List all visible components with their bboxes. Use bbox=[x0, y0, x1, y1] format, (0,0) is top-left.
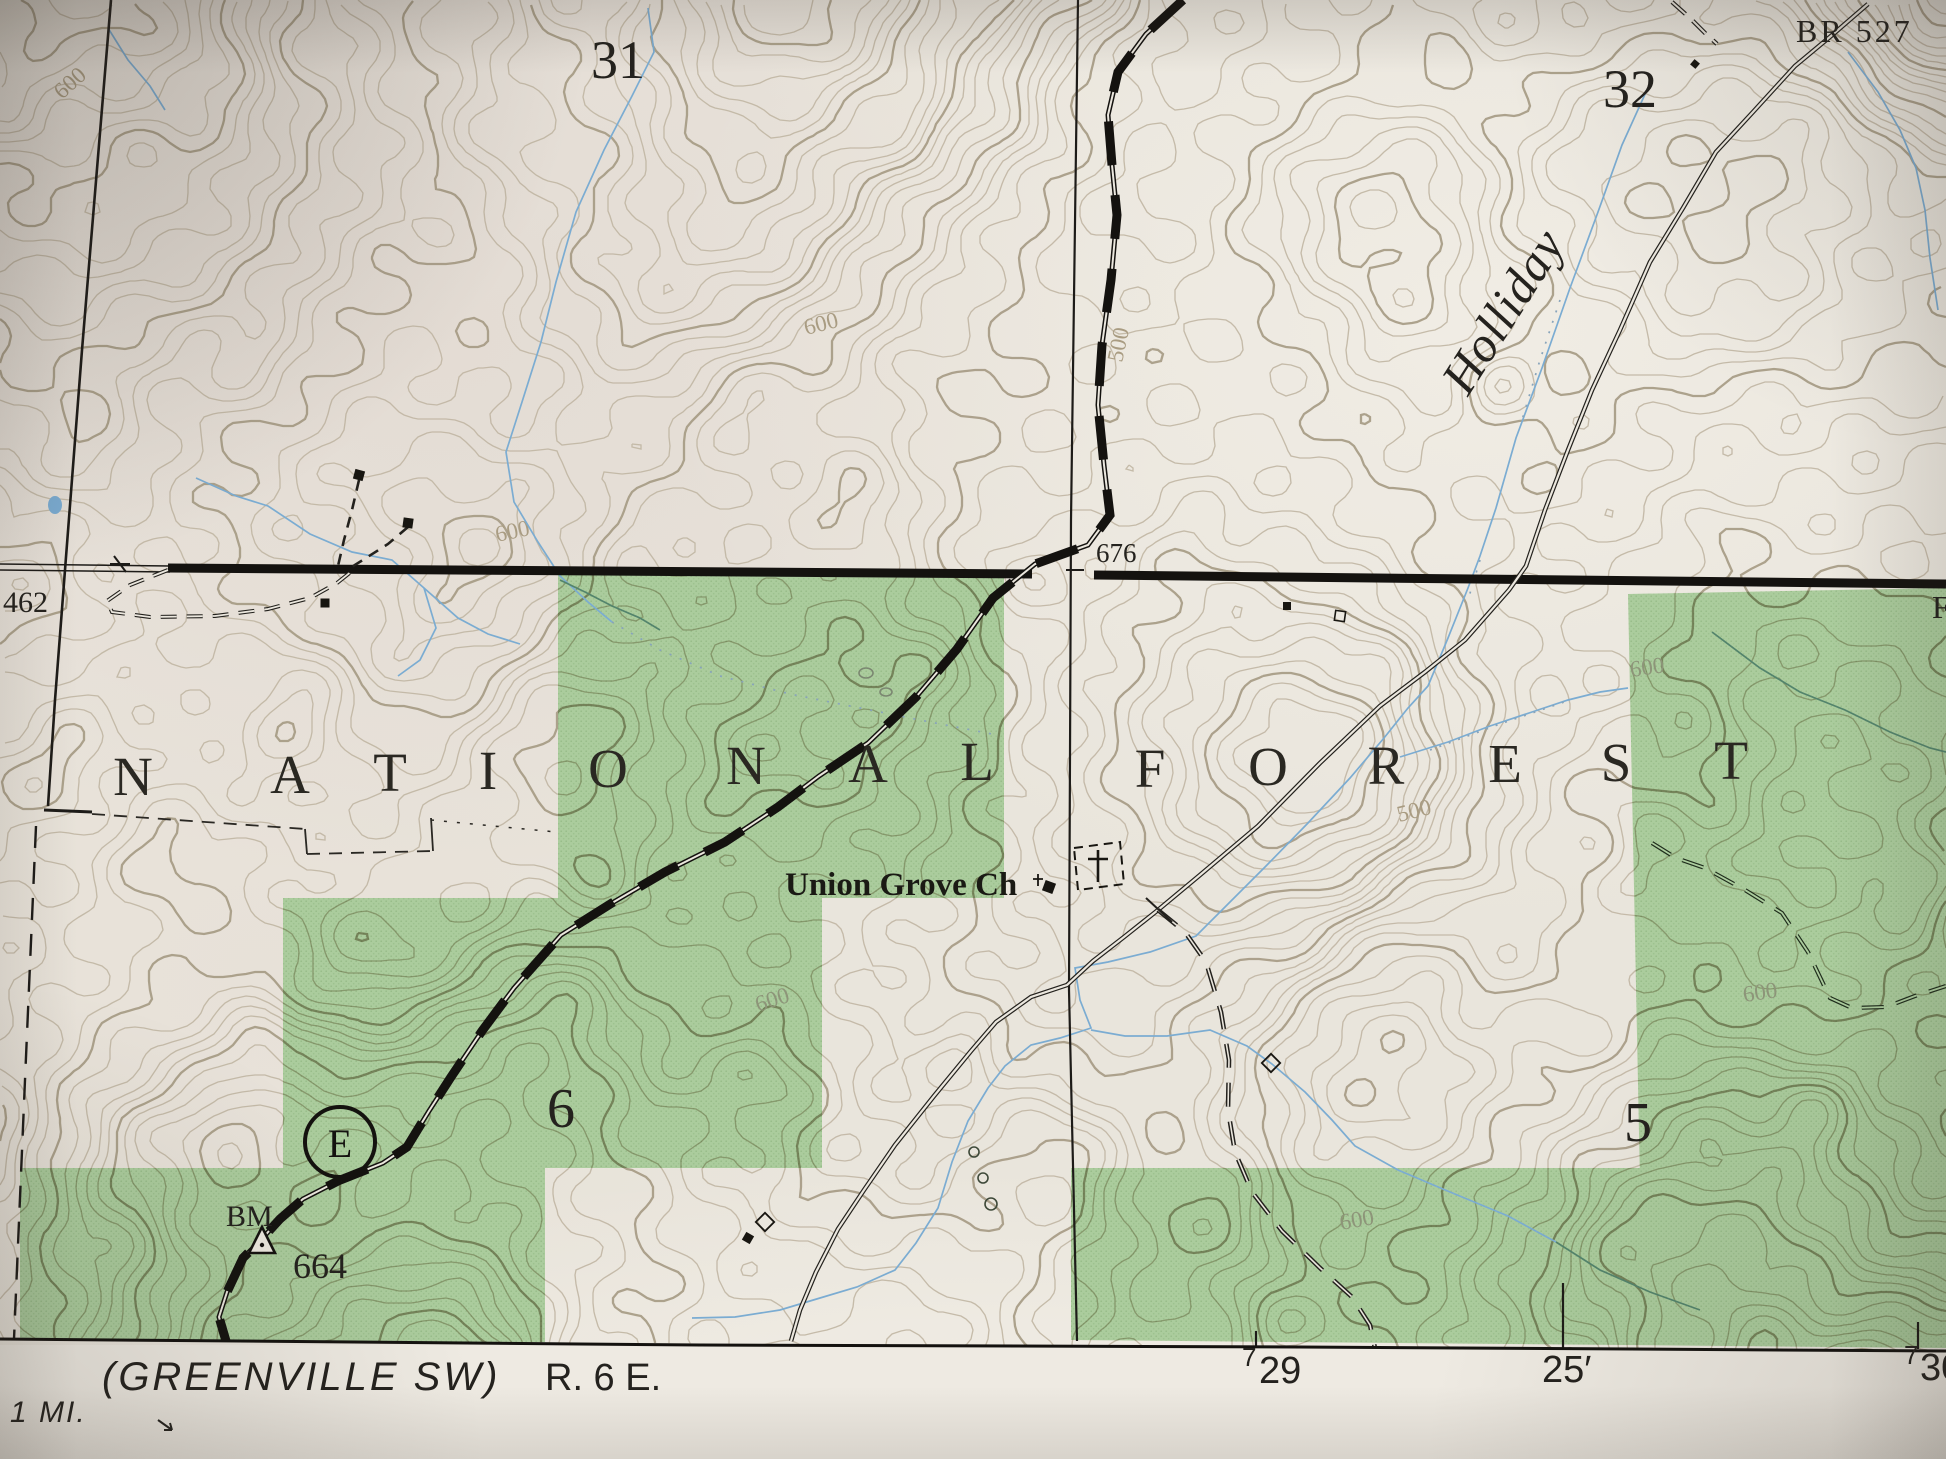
svg-text:F: F bbox=[1932, 589, 1946, 625]
svg-text:30: 30 bbox=[1920, 1347, 1946, 1389]
svg-text:31: 31 bbox=[591, 30, 645, 90]
svg-text:R. 6 E.: R. 6 E. bbox=[545, 1357, 661, 1399]
svg-text:600: 600 bbox=[1741, 977, 1779, 1007]
svg-text:29: 29 bbox=[1259, 1350, 1301, 1392]
svg-text:6: 6 bbox=[547, 1078, 575, 1140]
svg-text:R: R bbox=[1368, 735, 1405, 796]
svg-text:I: I bbox=[479, 740, 497, 801]
svg-text:7: 7 bbox=[1904, 1340, 1918, 1370]
svg-text:T: T bbox=[1714, 730, 1748, 791]
svg-text:N: N bbox=[726, 735, 766, 796]
svg-text:BR 527: BR 527 bbox=[1796, 13, 1913, 49]
svg-text:462: 462 bbox=[3, 586, 48, 619]
svg-text:O: O bbox=[588, 738, 628, 799]
svg-text:O: O bbox=[1248, 736, 1288, 797]
svg-text:5: 5 bbox=[1624, 1092, 1652, 1154]
svg-text:600: 600 bbox=[1628, 652, 1666, 682]
svg-text:676: 676 bbox=[1096, 538, 1137, 568]
svg-text:S: S bbox=[1601, 732, 1632, 793]
svg-text:32: 32 bbox=[1603, 59, 1657, 119]
svg-text:BM: BM bbox=[226, 1200, 273, 1233]
svg-text:1 MI.: 1 MI. bbox=[10, 1396, 87, 1429]
svg-text:L: L bbox=[960, 731, 994, 792]
svg-text:664: 664 bbox=[293, 1246, 347, 1286]
svg-text:E: E bbox=[328, 1121, 352, 1166]
svg-text:A: A bbox=[848, 733, 888, 794]
svg-text:T: T bbox=[373, 742, 407, 803]
svg-text:(GREENVILLE SW): (GREENVILLE SW) bbox=[102, 1355, 500, 1399]
svg-text:A: A bbox=[270, 744, 310, 805]
svg-text:E: E bbox=[1488, 733, 1522, 794]
svg-text:F: F bbox=[1135, 738, 1166, 799]
svg-text:7: 7 bbox=[1242, 1342, 1256, 1372]
svg-text:N: N bbox=[113, 746, 153, 807]
svg-text:25′: 25′ bbox=[1542, 1349, 1591, 1391]
svg-text:Union Grove Ch: Union Grove Ch bbox=[785, 867, 1017, 903]
